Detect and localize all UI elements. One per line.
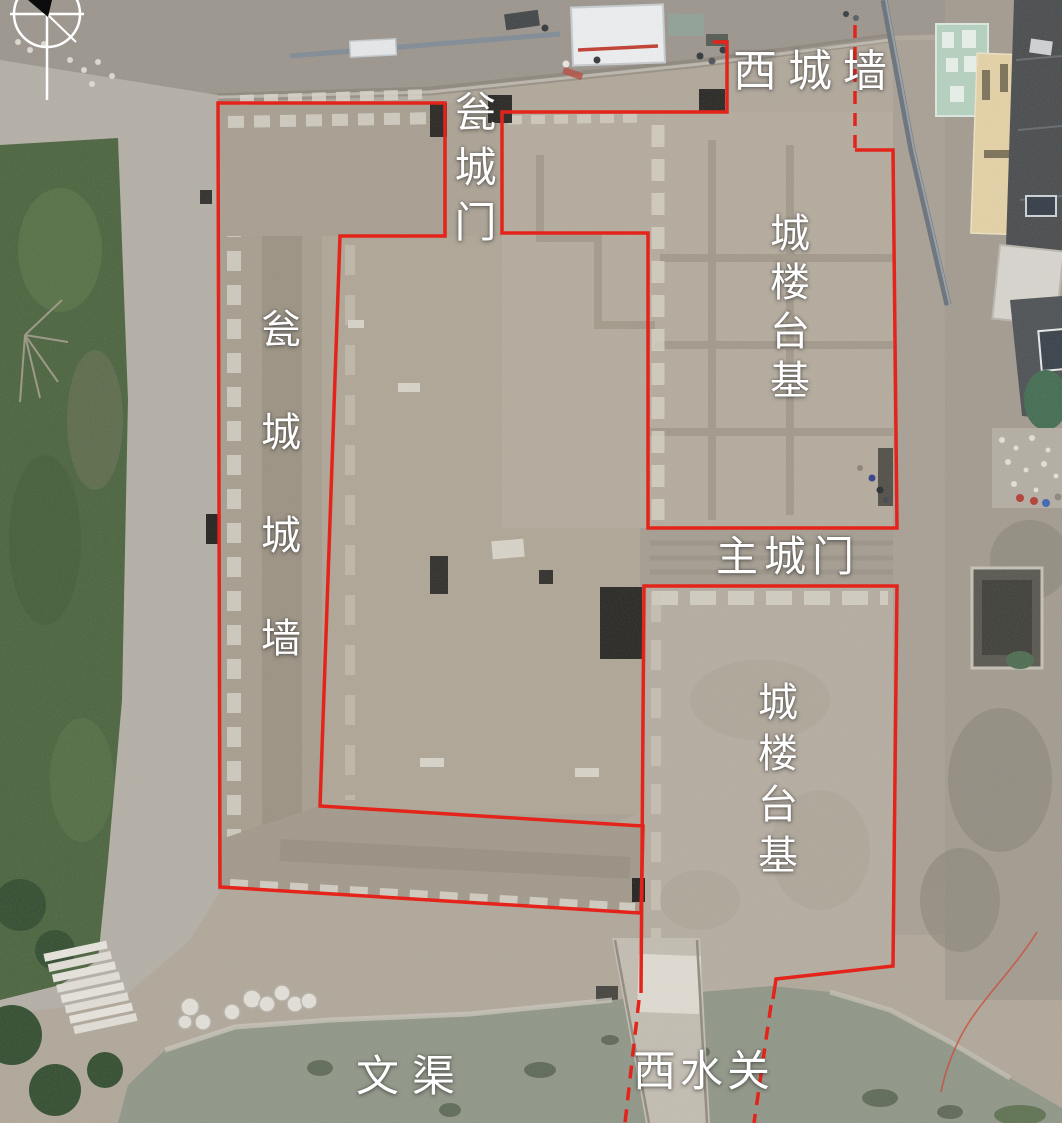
label-barbican-city-wall: 瓮城城墙 [257, 308, 297, 720]
aerial-photo-figure: 西城墙 瓮城门 城楼台基 瓮城城墙 主城门 城楼台基 文渠 西水关 [0, 0, 1062, 1123]
label-gate-tower-platform-south: 城楼台基 [754, 681, 794, 885]
aerial-photo [0, 0, 1062, 1123]
label-wen-canal: 文渠 [356, 1056, 468, 1099]
label-west-city-wall: 西城墙 [733, 50, 898, 94]
photo-grain [0, 0, 1062, 1123]
label-west-water-gate: 西水关 [633, 1051, 774, 1094]
label-gate-tower-platform-north: 城楼台基 [766, 212, 806, 408]
label-barbican-gate: 瓮城门 [450, 90, 492, 255]
label-main-city-gate: 主城门 [716, 537, 860, 579]
